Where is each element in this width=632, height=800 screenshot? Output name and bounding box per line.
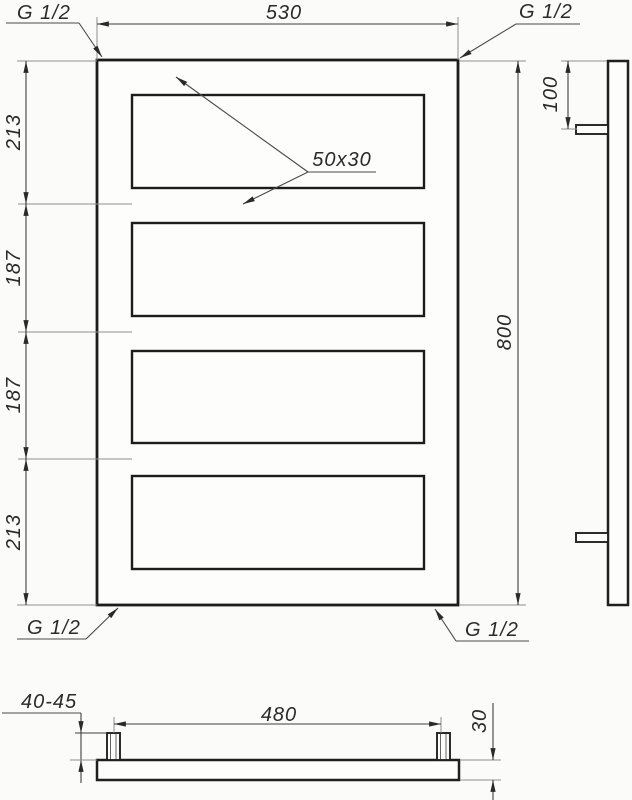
dim-height-800: 800 <box>459 61 526 605</box>
label-chain-213-bottom: 213 <box>3 514 25 551</box>
leader-line <box>86 608 118 639</box>
side-view <box>576 61 628 605</box>
label-height-800: 800 <box>494 314 516 350</box>
panel-opening-2 <box>132 223 424 316</box>
label-port-height-40-45: 40-45 <box>21 691 77 713</box>
callout-thread-bottom-left: G 1/2 <box>17 608 118 639</box>
label-chain-187-upper: 187 <box>3 250 25 286</box>
label-width-530: 530 <box>266 2 302 24</box>
leader-line <box>460 24 516 58</box>
bottom-port-right <box>437 733 450 760</box>
dim-port-height-40-45: 40-45 <box>2 691 107 783</box>
dim-offset-100: 100 <box>540 61 607 129</box>
label-thickness-30: 30 <box>469 709 491 733</box>
label-profile-50x30: 50x30 <box>312 149 372 171</box>
bottom-profile <box>97 760 459 780</box>
technical-drawing-page: 530 213 187 187 213 800 100 50x30 <box>0 0 632 800</box>
label-chain-187-lower: 187 <box>3 377 25 413</box>
label-thread-bottom-left: G 1/2 <box>27 617 81 639</box>
side-profile <box>608 61 628 605</box>
leader-line <box>79 23 102 57</box>
callout-thread-top-left: G 1/2 <box>6 2 102 57</box>
front-view <box>97 60 458 605</box>
bottom-view <box>97 733 459 780</box>
callout-thread-top-right: G 1/2 <box>460 1 580 58</box>
dim-spacing-480: 480 <box>114 704 441 733</box>
dim-width-530: 530 <box>97 2 458 60</box>
label-spacing-480: 480 <box>261 704 297 726</box>
panel-opening-1 <box>132 95 424 188</box>
label-thread-top-right: G 1/2 <box>519 1 573 23</box>
side-port-bottom <box>576 533 608 542</box>
label-thread-top-left: G 1/2 <box>17 2 71 24</box>
leader-line <box>435 609 456 641</box>
panel-opening-4 <box>132 476 424 569</box>
dim-thickness-30: 30 <box>460 703 501 800</box>
towel-rail-drawing: 530 213 187 187 213 800 100 50x30 <box>0 0 632 800</box>
label-thread-bottom-right: G 1/2 <box>465 619 519 641</box>
label-offset-100: 100 <box>540 76 562 112</box>
bottom-port-left <box>107 733 120 760</box>
side-port-top <box>576 125 608 134</box>
panel-opening-3 <box>132 351 424 443</box>
callout-thread-bottom-right: G 1/2 <box>435 609 529 641</box>
label-chain-213-top: 213 <box>3 114 25 151</box>
